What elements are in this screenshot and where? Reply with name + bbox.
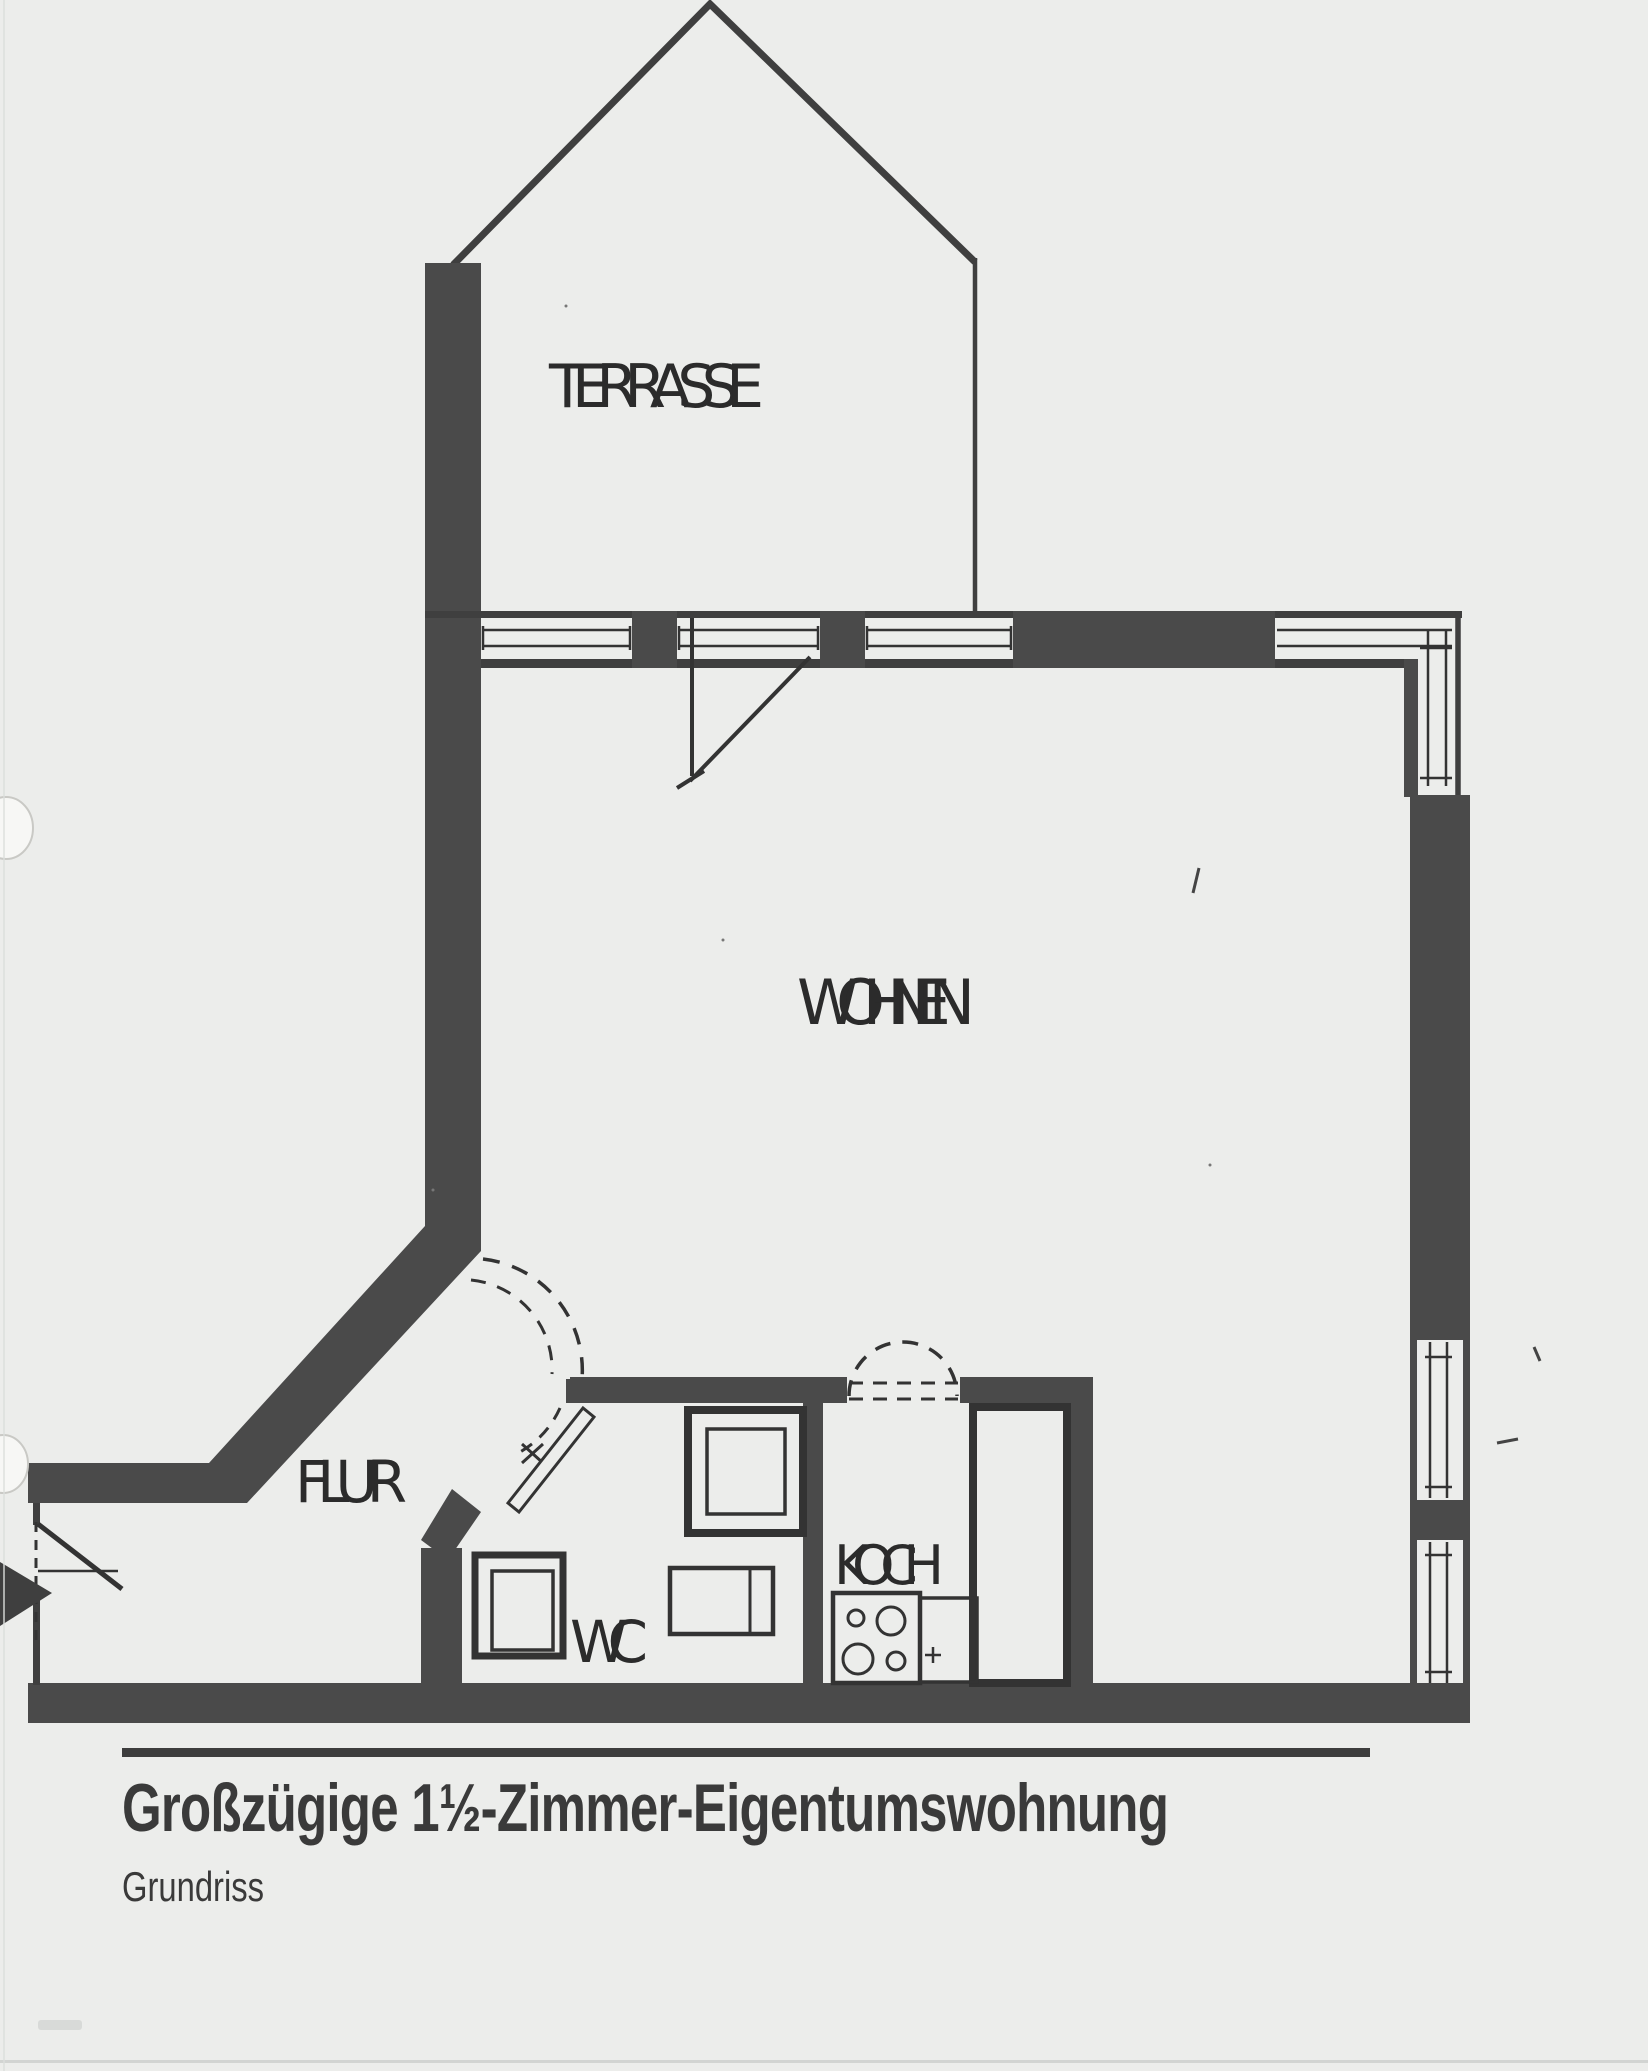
wall-wohnen-bottom	[570, 1342, 1093, 1403]
wall-solid-top-right	[1013, 611, 1275, 668]
floor-plan-drawing: TERRASSE WOHNEN FLUR WC KOCH	[0, 0, 1648, 2071]
caption-subtitle: Grundriss	[122, 1866, 264, 1908]
page-edge-line	[3, 0, 5, 2071]
page-edge-line	[0, 2060, 1648, 2063]
wall-left-and-flur	[28, 263, 481, 1503]
window-glass-lines-top	[483, 626, 1452, 650]
koch-door-arc	[849, 1342, 957, 1396]
terrace-door	[677, 618, 810, 788]
entrance-door	[0, 1503, 122, 1685]
shower-inner	[492, 1571, 553, 1650]
terrace-roof-outline	[453, 4, 975, 614]
room-label-wohnen: WOHNEN	[797, 966, 975, 1039]
scanned-floorplan-page: TERRASSE WOHNEN FLUR WC KOCH Großzügige …	[0, 0, 1648, 2071]
wc-door-leaf	[508, 1408, 594, 1512]
scan-smudge	[38, 2020, 82, 2030]
room-label-flur: FLUR	[295, 1448, 407, 1516]
cabinet-inner	[707, 1429, 785, 1514]
wall-bottom	[28, 1683, 1470, 1723]
wall-pier	[1410, 1500, 1470, 1540]
wall-pier	[632, 611, 677, 668]
sink	[920, 1598, 977, 1682]
wall-pier	[820, 611, 865, 668]
washbasin	[670, 1568, 773, 1634]
corner-window-top-right	[1404, 611, 1458, 797]
wall-top-with-windows	[425, 611, 1462, 668]
room-label-terrasse: TERRASSE	[548, 352, 764, 422]
koch-door-threshold	[849, 1383, 958, 1399]
fridge	[973, 1407, 1067, 1683]
wall-right	[1410, 795, 1470, 1688]
caption-rule	[122, 1748, 1370, 1757]
stray-scan-marks	[432, 305, 1541, 1444]
sink-faucet-cross	[925, 1647, 941, 1663]
wall-top-outer-line	[425, 611, 1462, 618]
room-label-koch: KOCH	[834, 1534, 944, 1597]
caption-title: Großzügige 1½-Zimmer-Eigentumswohnung	[122, 1774, 1168, 1842]
room-label-wc: WC	[570, 1608, 648, 1676]
